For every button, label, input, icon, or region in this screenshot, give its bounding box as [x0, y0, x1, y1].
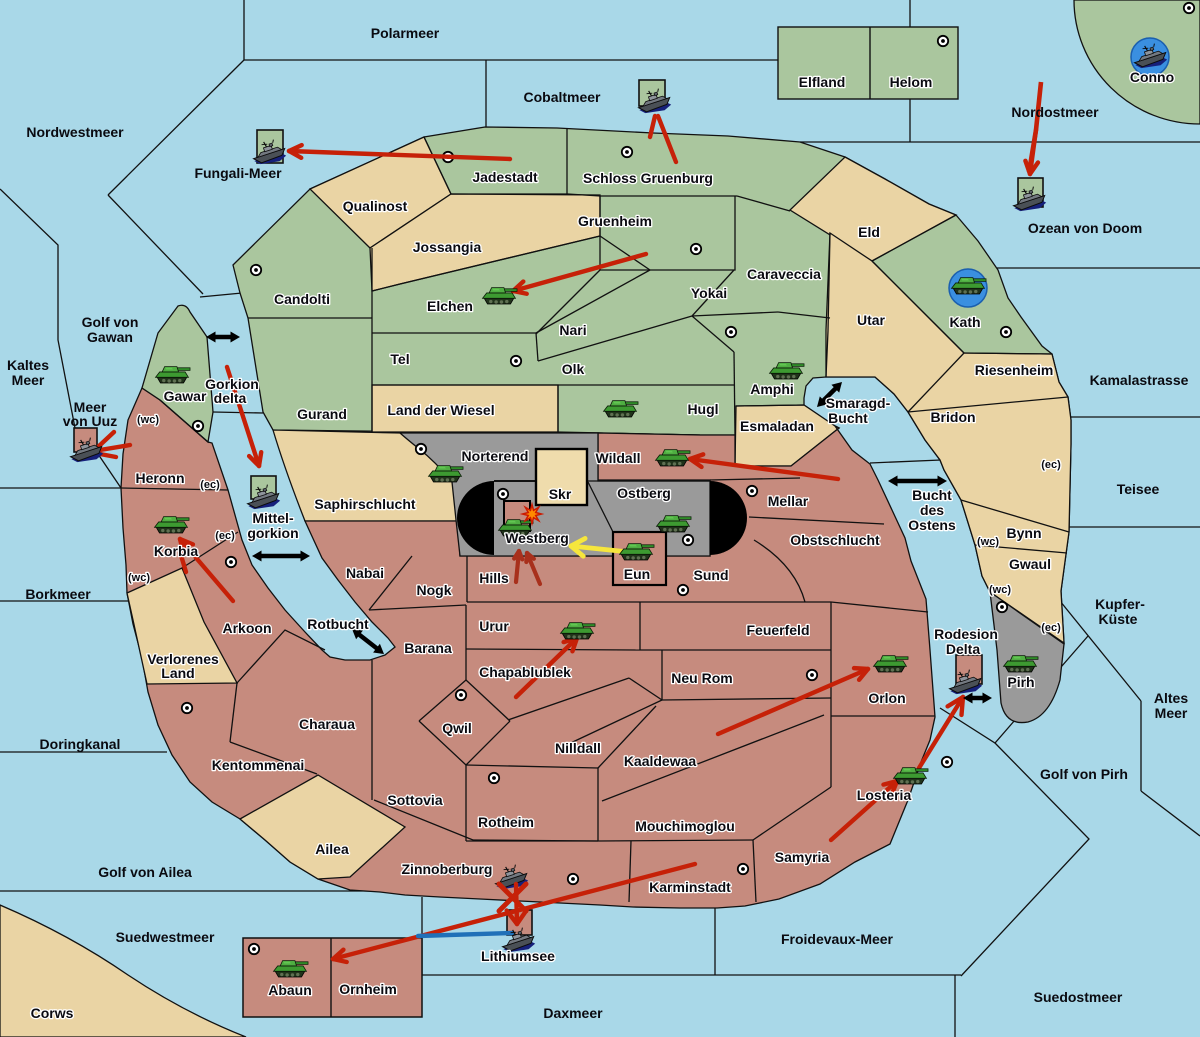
svg-text:Delta: Delta	[946, 641, 980, 657]
svg-text:Utar: Utar	[857, 312, 886, 328]
svg-text:Helom: Helom	[890, 74, 933, 90]
svg-text:Ostberg: Ostberg	[617, 485, 671, 501]
svg-text:Suedostmeer: Suedostmeer	[1034, 989, 1123, 1005]
svg-text:Bucht: Bucht	[912, 487, 952, 503]
svg-text:Gawar: Gawar	[164, 388, 207, 404]
svg-text:Hills: Hills	[479, 570, 509, 586]
svg-text:Smaragd-: Smaragd-	[826, 395, 891, 411]
svg-text:Kentommenai: Kentommenai	[212, 757, 305, 773]
svg-text:Altes: Altes	[1154, 690, 1188, 706]
svg-text:Küste: Küste	[1099, 611, 1138, 627]
svg-text:(wc): (wc)	[989, 584, 1011, 596]
svg-text:Losteria: Losteria	[857, 787, 912, 803]
svg-text:Mittel-: Mittel-	[252, 510, 294, 526]
svg-text:Gruenheim: Gruenheim	[578, 213, 652, 229]
svg-text:Hugl: Hugl	[687, 401, 718, 417]
svg-text:Ozean von Doom: Ozean von Doom	[1028, 220, 1142, 236]
svg-text:Saphirschlucht: Saphirschlucht	[314, 496, 415, 512]
svg-text:(ec): (ec)	[215, 530, 235, 542]
svg-text:Pirh: Pirh	[1007, 674, 1034, 690]
svg-text:Olk: Olk	[562, 361, 585, 377]
svg-text:Skr: Skr	[549, 486, 572, 502]
svg-text:Charaua: Charaua	[299, 716, 355, 732]
svg-text:Kath: Kath	[949, 314, 980, 330]
svg-text:Mellar: Mellar	[768, 493, 809, 509]
svg-text:Karminstadt: Karminstadt	[649, 879, 731, 895]
svg-text:Riesenheim: Riesenheim	[975, 362, 1054, 378]
svg-text:Meer: Meer	[1155, 705, 1188, 721]
svg-text:Amphi: Amphi	[750, 381, 794, 397]
svg-text:Eld: Eld	[858, 224, 880, 240]
svg-text:Golf von Pirh: Golf von Pirh	[1040, 766, 1128, 782]
svg-text:Golf von: Golf von	[82, 314, 139, 330]
svg-text:Feuerfeld: Feuerfeld	[746, 622, 809, 638]
svg-text:Daxmeer: Daxmeer	[543, 1005, 603, 1021]
svg-text:Bridon: Bridon	[930, 409, 975, 425]
svg-text:Doringkanal: Doringkanal	[40, 736, 121, 752]
svg-text:Corws: Corws	[31, 1005, 74, 1021]
svg-text:Kaltes: Kaltes	[7, 357, 49, 373]
svg-text:(ec): (ec)	[1041, 459, 1061, 471]
svg-text:Nogk: Nogk	[417, 582, 452, 598]
svg-text:Bynn: Bynn	[1007, 525, 1042, 541]
svg-text:Esmaladan: Esmaladan	[740, 418, 814, 434]
svg-text:Zinnoberburg: Zinnoberburg	[402, 861, 493, 877]
svg-text:Fungali-Meer: Fungali-Meer	[194, 165, 282, 181]
svg-text:Urur: Urur	[479, 618, 509, 634]
svg-text:Neu Rom: Neu Rom	[671, 670, 732, 686]
svg-text:Land der Wiesel: Land der Wiesel	[387, 402, 494, 418]
svg-text:Conno: Conno	[1130, 69, 1174, 85]
svg-text:(wc): (wc)	[137, 414, 159, 426]
svg-text:Nordwestmeer: Nordwestmeer	[26, 124, 124, 140]
svg-text:Schloss Gruenburg: Schloss Gruenburg	[583, 170, 713, 186]
svg-text:Chapablublek: Chapablublek	[479, 664, 571, 680]
svg-text:Gawan: Gawan	[87, 329, 133, 345]
svg-text:Yokai: Yokai	[691, 285, 727, 301]
svg-text:gorkion: gorkion	[247, 525, 298, 541]
svg-text:Teisee: Teisee	[1117, 481, 1160, 497]
svg-text:Norterend: Norterend	[462, 448, 529, 464]
svg-text:Suedwestmeer: Suedwestmeer	[116, 929, 215, 945]
svg-text:Elchen: Elchen	[427, 298, 473, 314]
svg-text:Samyria: Samyria	[775, 849, 830, 865]
svg-text:Candolti: Candolti	[274, 291, 330, 307]
svg-text:Jossangia: Jossangia	[413, 239, 482, 255]
svg-text:Westberg: Westberg	[505, 530, 569, 546]
svg-text:Orlon: Orlon	[868, 690, 905, 706]
svg-text:(wc): (wc)	[977, 536, 999, 548]
svg-text:Kamalastrasse: Kamalastrasse	[1090, 372, 1189, 388]
svg-text:(ec): (ec)	[1041, 622, 1061, 634]
svg-text:Polarmeer: Polarmeer	[371, 25, 440, 41]
svg-text:Tel: Tel	[390, 351, 409, 367]
svg-text:Golf von Ailea: Golf von Ailea	[98, 864, 192, 880]
svg-text:Jadestadt: Jadestadt	[472, 169, 538, 185]
svg-text:Nilldall: Nilldall	[555, 740, 601, 756]
svg-text:Nabai: Nabai	[346, 565, 384, 581]
svg-text:Nari: Nari	[559, 322, 586, 338]
svg-text:des: des	[920, 502, 944, 518]
svg-text:Korbia: Korbia	[154, 543, 199, 559]
svg-text:Qualinost: Qualinost	[343, 198, 408, 214]
svg-text:Ostens: Ostens	[908, 517, 956, 533]
svg-text:Meer: Meer	[12, 372, 45, 388]
svg-text:von Uuz: von Uuz	[63, 413, 117, 429]
svg-text:Rodesion: Rodesion	[934, 626, 998, 642]
svg-text:Froidevaux-Meer: Froidevaux-Meer	[781, 931, 894, 947]
svg-text:Barana: Barana	[404, 640, 452, 656]
svg-text:Mouchimoglou: Mouchimoglou	[635, 818, 735, 834]
svg-text:Ornheim: Ornheim	[339, 981, 397, 997]
svg-text:Heronn: Heronn	[136, 470, 185, 486]
svg-text:Eun: Eun	[624, 566, 650, 582]
svg-text:Sottovia: Sottovia	[387, 792, 442, 808]
svg-text:Land: Land	[161, 665, 194, 681]
svg-text:(wc): (wc)	[128, 572, 150, 584]
svg-text:Ailea: Ailea	[315, 841, 349, 857]
svg-text:Bucht: Bucht	[828, 410, 868, 426]
svg-text:Obstschlucht: Obstschlucht	[790, 532, 880, 548]
svg-text:Gwaul: Gwaul	[1009, 556, 1051, 572]
svg-text:Elfland: Elfland	[799, 74, 846, 90]
svg-text:Rotbucht: Rotbucht	[307, 616, 369, 632]
svg-text:Qwil: Qwil	[442, 720, 472, 736]
svg-text:Rotheim: Rotheim	[478, 814, 534, 830]
svg-text:(ec): (ec)	[200, 479, 220, 491]
svg-text:Borkmeer: Borkmeer	[25, 586, 91, 602]
svg-text:Caraveccia: Caraveccia	[747, 266, 821, 282]
svg-text:Wildall: Wildall	[596, 450, 641, 466]
svg-text:Gurand: Gurand	[297, 406, 347, 422]
svg-text:Cobaltmeer: Cobaltmeer	[523, 89, 601, 105]
svg-text:Kupfer-: Kupfer-	[1095, 596, 1145, 612]
svg-text:Kaaldewaa: Kaaldewaa	[624, 753, 697, 769]
svg-text:Lithiumsee: Lithiumsee	[481, 948, 555, 964]
svg-text:Abaun: Abaun	[268, 982, 312, 998]
svg-text:Arkoon: Arkoon	[223, 620, 272, 636]
svg-text:delta: delta	[214, 390, 247, 406]
svg-text:Nordostmeer: Nordostmeer	[1011, 104, 1099, 120]
svg-text:Sund: Sund	[694, 567, 729, 583]
